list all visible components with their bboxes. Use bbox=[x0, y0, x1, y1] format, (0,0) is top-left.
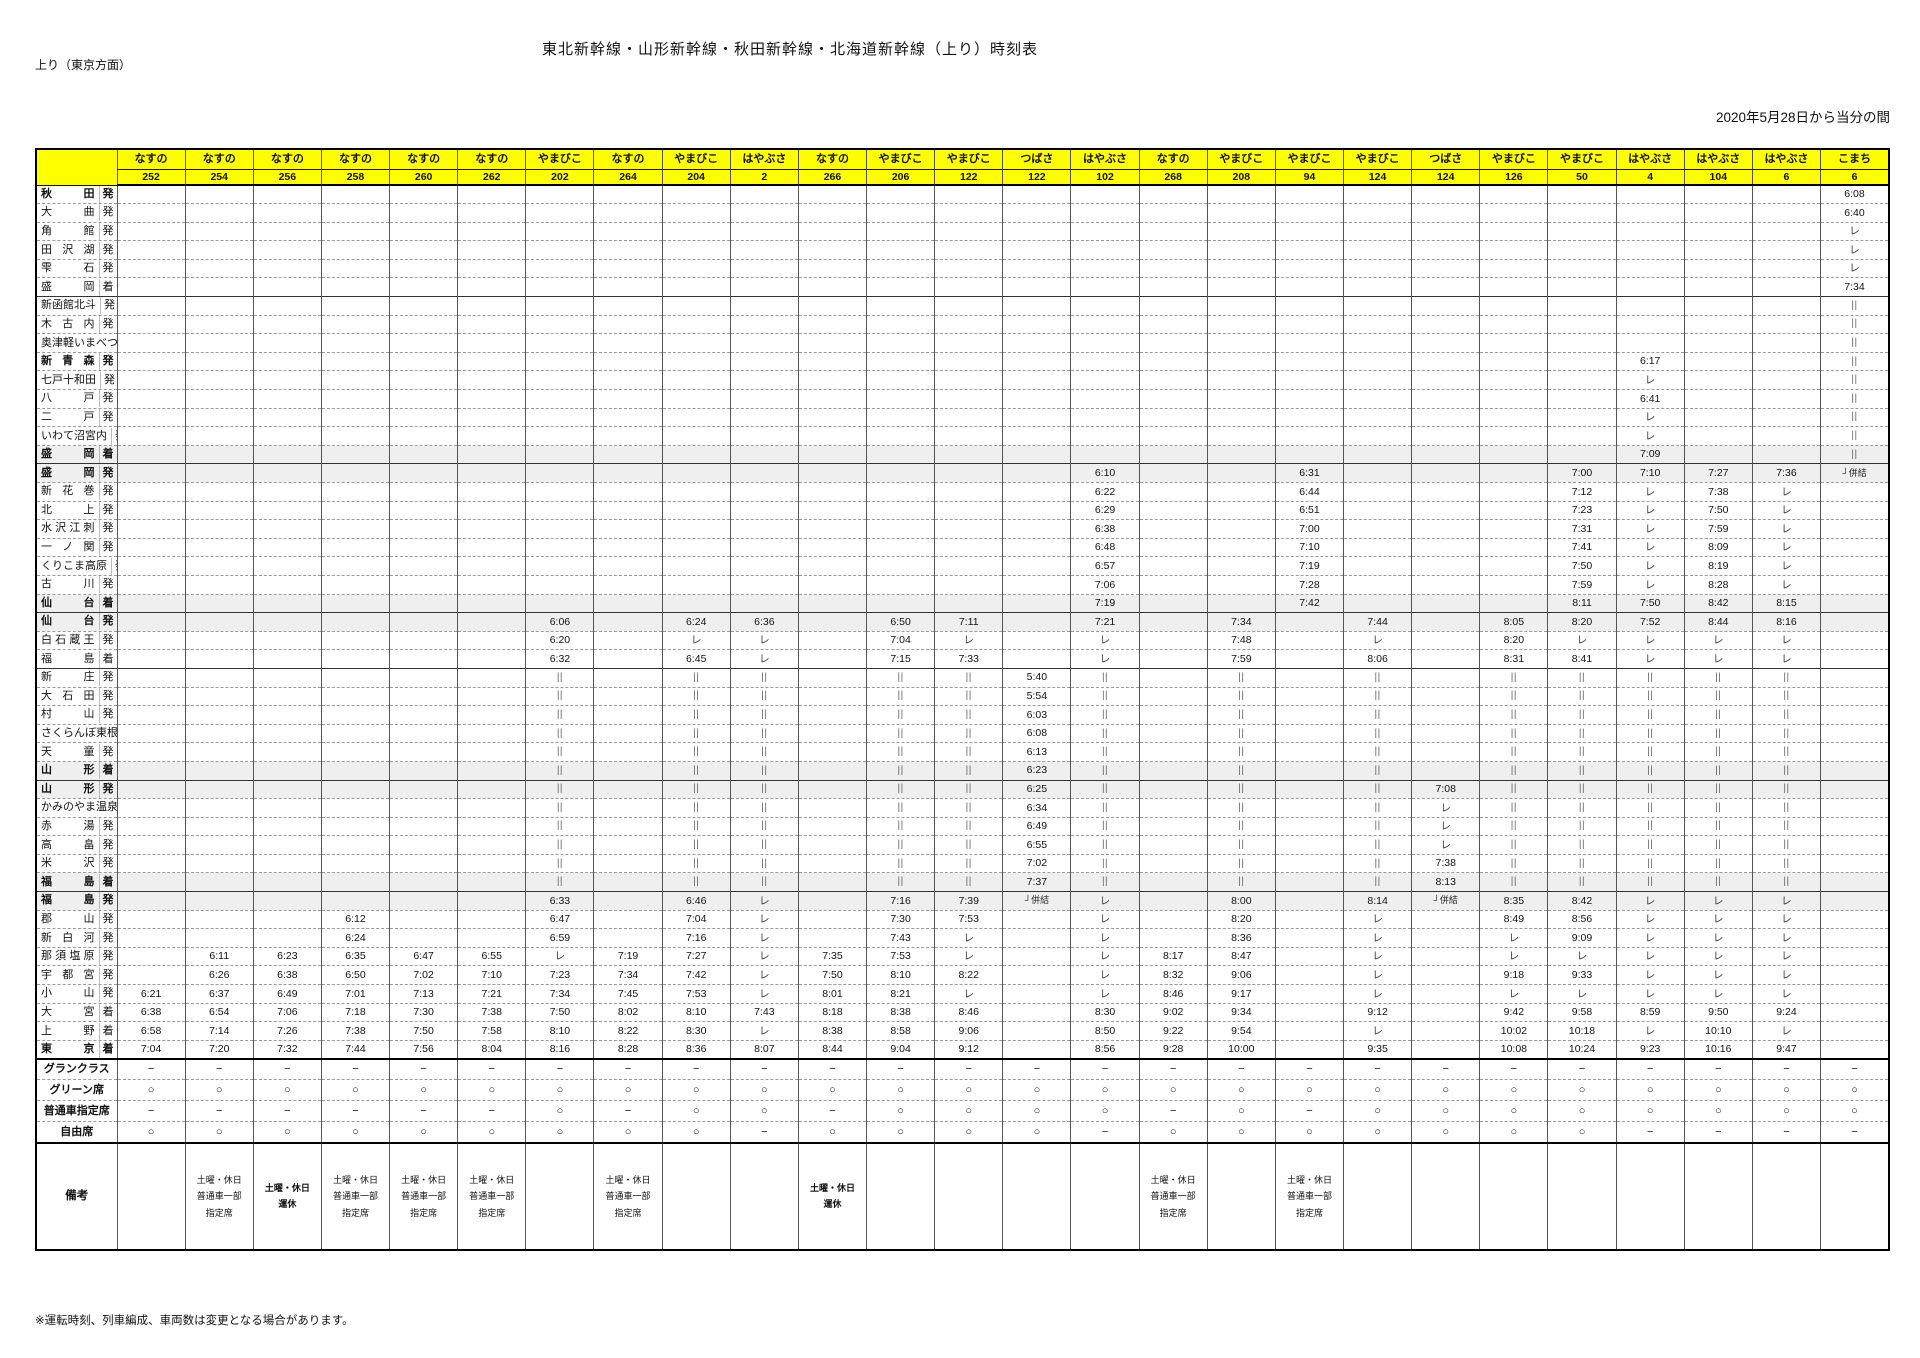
time-cell: 8:07 bbox=[730, 1040, 798, 1059]
time-cell: レ bbox=[1480, 947, 1548, 966]
time-cell: 6:38 bbox=[253, 966, 321, 985]
time-cell bbox=[1003, 947, 1071, 966]
time-cell bbox=[1139, 538, 1207, 557]
time-cell bbox=[458, 278, 526, 297]
time-cell: 7:38 bbox=[458, 1003, 526, 1022]
time-cell: 6:36 bbox=[730, 613, 798, 632]
time-cell bbox=[1821, 947, 1889, 966]
time-cell bbox=[1480, 408, 1548, 427]
time-cell: || bbox=[1344, 836, 1412, 855]
time-cell: || bbox=[1684, 687, 1752, 706]
time-cell: || bbox=[1684, 706, 1752, 725]
time-cell bbox=[390, 352, 458, 371]
time-cell bbox=[662, 371, 730, 390]
time-cell bbox=[185, 278, 253, 297]
time-cell: レ bbox=[1344, 929, 1412, 948]
time-cell: 8:28 bbox=[594, 1040, 662, 1059]
time-cell bbox=[458, 483, 526, 502]
time-cell bbox=[117, 501, 185, 520]
time-cell bbox=[730, 371, 798, 390]
time-cell: 6:38 bbox=[1071, 520, 1139, 539]
seat-cell: ○ bbox=[730, 1080, 798, 1101]
station-label: 奥津軽いまべつ発 bbox=[36, 334, 117, 353]
time-cell: || bbox=[1752, 706, 1820, 725]
time-cell: 6:23 bbox=[253, 947, 321, 966]
time-cell: レ bbox=[1548, 985, 1616, 1004]
time-cell: レ bbox=[1071, 947, 1139, 966]
time-cell: レ bbox=[1344, 966, 1412, 985]
time-cell: レ bbox=[1752, 892, 1820, 911]
seat-cell: − bbox=[390, 1101, 458, 1122]
time-cell bbox=[321, 222, 389, 241]
time-cell: || bbox=[1207, 854, 1275, 873]
time-cell: 7:26 bbox=[253, 1022, 321, 1041]
station-label: 村山発 bbox=[36, 706, 117, 725]
time-cell bbox=[321, 854, 389, 873]
seat-cell: ○ bbox=[1139, 1080, 1207, 1101]
seat-cell: − bbox=[1207, 1059, 1275, 1080]
time-cell: 7:48 bbox=[1207, 631, 1275, 650]
time-cell bbox=[321, 408, 389, 427]
time-cell bbox=[867, 594, 935, 613]
time-cell bbox=[117, 185, 185, 204]
time-cell bbox=[185, 204, 253, 223]
time-cell bbox=[1752, 297, 1820, 316]
time-cell bbox=[526, 278, 594, 297]
time-cell bbox=[185, 780, 253, 799]
time-cell: || bbox=[662, 724, 730, 743]
time-cell bbox=[458, 613, 526, 632]
time-cell bbox=[1071, 278, 1139, 297]
time-cell: 7:16 bbox=[867, 892, 935, 911]
time-cell: 7:23 bbox=[1548, 501, 1616, 520]
station-row: 古川発7:067:287:59レ8:28レ bbox=[36, 575, 1889, 594]
time-cell: 8:22 bbox=[935, 966, 1003, 985]
time-cell bbox=[1412, 538, 1480, 557]
station-label: 高畠発 bbox=[36, 836, 117, 855]
time-cell bbox=[321, 241, 389, 260]
time-cell bbox=[935, 334, 1003, 353]
time-cell bbox=[1821, 650, 1889, 669]
time-cell bbox=[935, 408, 1003, 427]
seat-cell: ○ bbox=[1003, 1101, 1071, 1122]
time-cell: レ bbox=[1616, 575, 1684, 594]
seat-cell: − bbox=[1616, 1122, 1684, 1143]
time-cell bbox=[1684, 408, 1752, 427]
time-cell: レ bbox=[1616, 650, 1684, 669]
time-cell bbox=[526, 371, 594, 390]
time-cell bbox=[798, 483, 866, 502]
time-cell bbox=[390, 873, 458, 892]
time-cell bbox=[662, 315, 730, 334]
time-cell: 8:36 bbox=[1207, 929, 1275, 948]
time-cell bbox=[1275, 427, 1343, 446]
time-cell bbox=[1003, 241, 1071, 260]
time-cell: || bbox=[1616, 873, 1684, 892]
time-cell bbox=[458, 204, 526, 223]
time-cell bbox=[1344, 352, 1412, 371]
time-cell: レ bbox=[1071, 910, 1139, 929]
time-cell bbox=[1344, 222, 1412, 241]
time-cell: レ bbox=[1344, 985, 1412, 1004]
time-cell bbox=[117, 668, 185, 687]
time-cell bbox=[458, 817, 526, 836]
time-cell bbox=[390, 557, 458, 576]
time-cell bbox=[1071, 371, 1139, 390]
time-cell: 6:24 bbox=[662, 613, 730, 632]
time-cell bbox=[730, 315, 798, 334]
station-row: 東京着7:047:207:327:447:568:048:168:288:368… bbox=[36, 1040, 1889, 1059]
seat-cell: ○ bbox=[117, 1080, 185, 1101]
train-number: 2 bbox=[730, 170, 798, 186]
time-cell bbox=[1480, 557, 1548, 576]
time-cell: || bbox=[1548, 799, 1616, 818]
time-cell bbox=[1344, 557, 1412, 576]
remark-cell: 土曜・休日 普通車一部 指定席 bbox=[185, 1143, 253, 1250]
time-cell: || bbox=[1071, 780, 1139, 799]
time-cell: || bbox=[1752, 780, 1820, 799]
time-cell: || bbox=[662, 706, 730, 725]
time-cell: || bbox=[1480, 873, 1548, 892]
train-number: 124 bbox=[1412, 170, 1480, 186]
time-cell: || bbox=[1752, 836, 1820, 855]
time-cell bbox=[867, 371, 935, 390]
time-cell bbox=[1207, 259, 1275, 278]
time-cell: 7:13 bbox=[390, 985, 458, 1004]
time-cell bbox=[1207, 445, 1275, 464]
time-cell bbox=[1139, 297, 1207, 316]
time-cell bbox=[1412, 520, 1480, 539]
time-cell bbox=[1275, 259, 1343, 278]
time-cell bbox=[321, 185, 389, 204]
seat-cell: ○ bbox=[1821, 1080, 1889, 1101]
time-cell bbox=[390, 501, 458, 520]
time-cell: 6:50 bbox=[867, 613, 935, 632]
time-cell bbox=[1480, 297, 1548, 316]
time-cell: 6:11 bbox=[185, 947, 253, 966]
station-label: 白石蔵王発 bbox=[36, 631, 117, 650]
time-cell bbox=[1480, 520, 1548, 539]
time-cell: 6:34 bbox=[1003, 799, 1071, 818]
time-cell: || bbox=[1207, 687, 1275, 706]
time-cell bbox=[935, 297, 1003, 316]
time-cell bbox=[594, 278, 662, 297]
time-cell: || bbox=[1548, 761, 1616, 780]
time-cell bbox=[185, 520, 253, 539]
time-cell: || bbox=[1207, 706, 1275, 725]
time-cell bbox=[185, 910, 253, 929]
time-cell bbox=[594, 464, 662, 483]
time-cell: || bbox=[1207, 873, 1275, 892]
time-cell bbox=[117, 743, 185, 762]
time-cell: 7:32 bbox=[253, 1040, 321, 1059]
time-cell bbox=[1752, 408, 1820, 427]
time-cell: レ bbox=[1616, 427, 1684, 446]
time-cell: 7:27 bbox=[1684, 464, 1752, 483]
time-cell bbox=[1003, 1003, 1071, 1022]
station-label: 水沢江刺発 bbox=[36, 520, 117, 539]
seat-cell: − bbox=[1752, 1059, 1820, 1080]
seat-row-label: 自由席 bbox=[36, 1122, 117, 1143]
time-cell bbox=[935, 204, 1003, 223]
time-cell: || bbox=[1548, 668, 1616, 687]
time-cell bbox=[1821, 613, 1889, 632]
time-cell bbox=[390, 538, 458, 557]
remarks-row: 備考土曜・休日 普通車一部 指定席土曜・休日 運休土曜・休日 普通車一部 指定席… bbox=[36, 1143, 1889, 1250]
time-cell bbox=[321, 315, 389, 334]
time-cell: 8:10 bbox=[662, 1003, 730, 1022]
time-cell bbox=[526, 464, 594, 483]
seat-cell: ○ bbox=[1752, 1101, 1820, 1122]
train-name: はやぶさ bbox=[1616, 149, 1684, 170]
time-cell bbox=[458, 724, 526, 743]
time-cell: || bbox=[1821, 352, 1889, 371]
seat-cell: ○ bbox=[1275, 1122, 1343, 1143]
train-number: 122 bbox=[1003, 170, 1071, 186]
time-cell bbox=[1275, 315, 1343, 334]
station-row: 宇都宮発6:266:386:507:027:107:237:347:42レ7:5… bbox=[36, 966, 1889, 985]
time-cell bbox=[1548, 297, 1616, 316]
time-cell bbox=[594, 892, 662, 911]
time-cell bbox=[1139, 241, 1207, 260]
time-cell bbox=[458, 557, 526, 576]
time-cell bbox=[321, 613, 389, 632]
time-cell: 6:47 bbox=[526, 910, 594, 929]
time-cell bbox=[458, 929, 526, 948]
time-cell: || bbox=[1548, 743, 1616, 762]
time-cell bbox=[1821, 873, 1889, 892]
time-cell bbox=[730, 483, 798, 502]
time-cell: 7:04 bbox=[662, 910, 730, 929]
remark-cell bbox=[526, 1143, 594, 1250]
seat-cell: − bbox=[1821, 1122, 1889, 1143]
seat-cell: − bbox=[526, 1059, 594, 1080]
time-cell bbox=[1412, 1022, 1480, 1041]
train-name: なすの bbox=[458, 149, 526, 170]
time-cell: || bbox=[1752, 761, 1820, 780]
time-cell bbox=[935, 315, 1003, 334]
time-cell bbox=[390, 259, 458, 278]
time-cell: ┘併結 bbox=[1821, 464, 1889, 483]
time-cell bbox=[458, 371, 526, 390]
station-row: 新花巻発6:226:447:12レ7:38レ bbox=[36, 483, 1889, 502]
seat-cell: ○ bbox=[185, 1122, 253, 1143]
time-cell: || bbox=[1207, 817, 1275, 836]
time-cell: 9:54 bbox=[1207, 1022, 1275, 1041]
time-cell bbox=[526, 334, 594, 353]
seat-cell: ○ bbox=[662, 1122, 730, 1143]
time-cell bbox=[117, 241, 185, 260]
time-cell: 9:06 bbox=[1207, 966, 1275, 985]
seat-cell: − bbox=[1412, 1059, 1480, 1080]
time-cell: || bbox=[730, 854, 798, 873]
remark-cell: 土曜・休日 普通車一部 指定席 bbox=[458, 1143, 526, 1250]
station-label: 天童発 bbox=[36, 743, 117, 762]
time-cell bbox=[1344, 297, 1412, 316]
train-number: 122 bbox=[935, 170, 1003, 186]
time-cell: || bbox=[935, 724, 1003, 743]
time-cell bbox=[117, 817, 185, 836]
time-cell bbox=[662, 297, 730, 316]
time-cell bbox=[1344, 204, 1412, 223]
time-cell bbox=[1684, 334, 1752, 353]
time-cell: 7:23 bbox=[526, 966, 594, 985]
time-cell bbox=[594, 427, 662, 446]
time-cell bbox=[390, 613, 458, 632]
time-cell bbox=[253, 278, 321, 297]
time-cell bbox=[662, 241, 730, 260]
time-cell bbox=[867, 204, 935, 223]
seat-cell: − bbox=[1275, 1101, 1343, 1122]
time-cell: 6:06 bbox=[526, 613, 594, 632]
time-cell: レ bbox=[1616, 371, 1684, 390]
time-cell bbox=[253, 483, 321, 502]
train-number: 204 bbox=[662, 170, 730, 186]
time-cell bbox=[1344, 334, 1412, 353]
time-cell: 7:00 bbox=[1275, 520, 1343, 539]
station-row: 盛岡発6:106:317:007:107:277:36┘併結 bbox=[36, 464, 1889, 483]
time-cell: レ bbox=[1616, 483, 1684, 502]
time-cell bbox=[662, 483, 730, 502]
time-cell bbox=[321, 817, 389, 836]
seat-cell: − bbox=[1821, 1059, 1889, 1080]
train-name: やまびこ bbox=[935, 149, 1003, 170]
time-cell bbox=[1412, 483, 1480, 502]
time-cell: || bbox=[1616, 706, 1684, 725]
time-cell bbox=[321, 743, 389, 762]
time-cell bbox=[321, 371, 389, 390]
time-cell: 7:45 bbox=[594, 985, 662, 1004]
train-number: 254 bbox=[185, 170, 253, 186]
seat-cell: − bbox=[935, 1059, 1003, 1080]
time-cell bbox=[1548, 241, 1616, 260]
time-cell: 9:28 bbox=[1139, 1040, 1207, 1059]
time-cell bbox=[1480, 371, 1548, 390]
time-cell: 10:10 bbox=[1684, 1022, 1752, 1041]
station-label: 盛岡着 bbox=[36, 445, 117, 464]
time-cell bbox=[1275, 892, 1343, 911]
time-cell bbox=[1003, 650, 1071, 669]
time-cell: || bbox=[1752, 687, 1820, 706]
time-cell: 8:20 bbox=[1548, 613, 1616, 632]
seat-cell: − bbox=[1071, 1059, 1139, 1080]
time-cell bbox=[1275, 352, 1343, 371]
seat-cell: − bbox=[253, 1059, 321, 1080]
time-cell bbox=[390, 799, 458, 818]
time-cell: || bbox=[1821, 334, 1889, 353]
time-cell bbox=[117, 390, 185, 409]
time-cell bbox=[390, 631, 458, 650]
time-cell bbox=[253, 631, 321, 650]
time-cell bbox=[1275, 817, 1343, 836]
time-cell: || bbox=[867, 761, 935, 780]
time-cell bbox=[1821, 761, 1889, 780]
station-row: 一ノ関発6:487:107:41レ8:09レ bbox=[36, 538, 1889, 557]
time-cell bbox=[321, 687, 389, 706]
time-cell: 7:59 bbox=[1207, 650, 1275, 669]
time-cell bbox=[458, 241, 526, 260]
time-cell bbox=[1548, 427, 1616, 446]
time-cell bbox=[458, 315, 526, 334]
station-row: 高畠発||||||||||6:55||||||レ|||||||||| bbox=[36, 836, 1889, 855]
time-cell: レ bbox=[1684, 985, 1752, 1004]
remark-cell bbox=[1752, 1143, 1820, 1250]
time-cell: || bbox=[1684, 743, 1752, 762]
time-cell bbox=[594, 836, 662, 855]
time-cell: || bbox=[662, 854, 730, 873]
time-cell bbox=[321, 724, 389, 743]
time-cell bbox=[1412, 464, 1480, 483]
time-cell bbox=[1548, 185, 1616, 204]
time-cell bbox=[526, 390, 594, 409]
time-cell bbox=[798, 780, 866, 799]
time-cell bbox=[458, 799, 526, 818]
time-cell bbox=[117, 761, 185, 780]
time-cell: レ bbox=[662, 631, 730, 650]
time-cell bbox=[1071, 315, 1139, 334]
station-row: 二戸発レ|| bbox=[36, 408, 1889, 427]
time-cell bbox=[1412, 222, 1480, 241]
time-cell: レ bbox=[1616, 501, 1684, 520]
time-cell: 9:18 bbox=[1480, 966, 1548, 985]
time-cell bbox=[730, 464, 798, 483]
time-cell bbox=[1548, 352, 1616, 371]
time-cell bbox=[867, 297, 935, 316]
remark-cell bbox=[730, 1143, 798, 1250]
station-label: 福島発 bbox=[36, 892, 117, 911]
time-cell bbox=[390, 743, 458, 762]
station-row: 新庄発||||||||||5:40|||||||||||||||| bbox=[36, 668, 1889, 687]
station-label: 米沢発 bbox=[36, 854, 117, 873]
time-cell bbox=[321, 873, 389, 892]
time-cell bbox=[185, 222, 253, 241]
time-cell: 7:30 bbox=[390, 1003, 458, 1022]
time-cell: || bbox=[1821, 315, 1889, 334]
time-cell bbox=[1344, 483, 1412, 502]
time-cell bbox=[390, 204, 458, 223]
time-cell bbox=[1480, 445, 1548, 464]
train-name: なすの bbox=[117, 149, 185, 170]
time-cell bbox=[594, 371, 662, 390]
time-cell: レ bbox=[526, 947, 594, 966]
remark-cell bbox=[1207, 1143, 1275, 1250]
time-cell bbox=[867, 501, 935, 520]
time-cell bbox=[1275, 780, 1343, 799]
time-cell bbox=[1207, 390, 1275, 409]
time-cell bbox=[1139, 854, 1207, 873]
time-cell bbox=[321, 483, 389, 502]
time-cell bbox=[1752, 427, 1820, 446]
time-cell bbox=[1275, 910, 1343, 929]
time-cell bbox=[594, 594, 662, 613]
time-cell: 6:51 bbox=[1275, 501, 1343, 520]
time-cell bbox=[798, 854, 866, 873]
time-cell: 7:28 bbox=[1275, 575, 1343, 594]
time-cell: 7:50 bbox=[798, 966, 866, 985]
time-cell: レ bbox=[1752, 1022, 1820, 1041]
time-cell bbox=[1412, 594, 1480, 613]
time-cell bbox=[390, 297, 458, 316]
time-cell: レ bbox=[1616, 947, 1684, 966]
time-cell: || bbox=[1480, 761, 1548, 780]
time-cell bbox=[185, 743, 253, 762]
time-cell: レ bbox=[1752, 966, 1820, 985]
train-number: 256 bbox=[253, 170, 321, 186]
time-cell bbox=[594, 650, 662, 669]
time-cell: 10:00 bbox=[1207, 1040, 1275, 1059]
time-cell: 8:38 bbox=[798, 1022, 866, 1041]
station-row: 盛岡着7:09|| bbox=[36, 445, 1889, 464]
